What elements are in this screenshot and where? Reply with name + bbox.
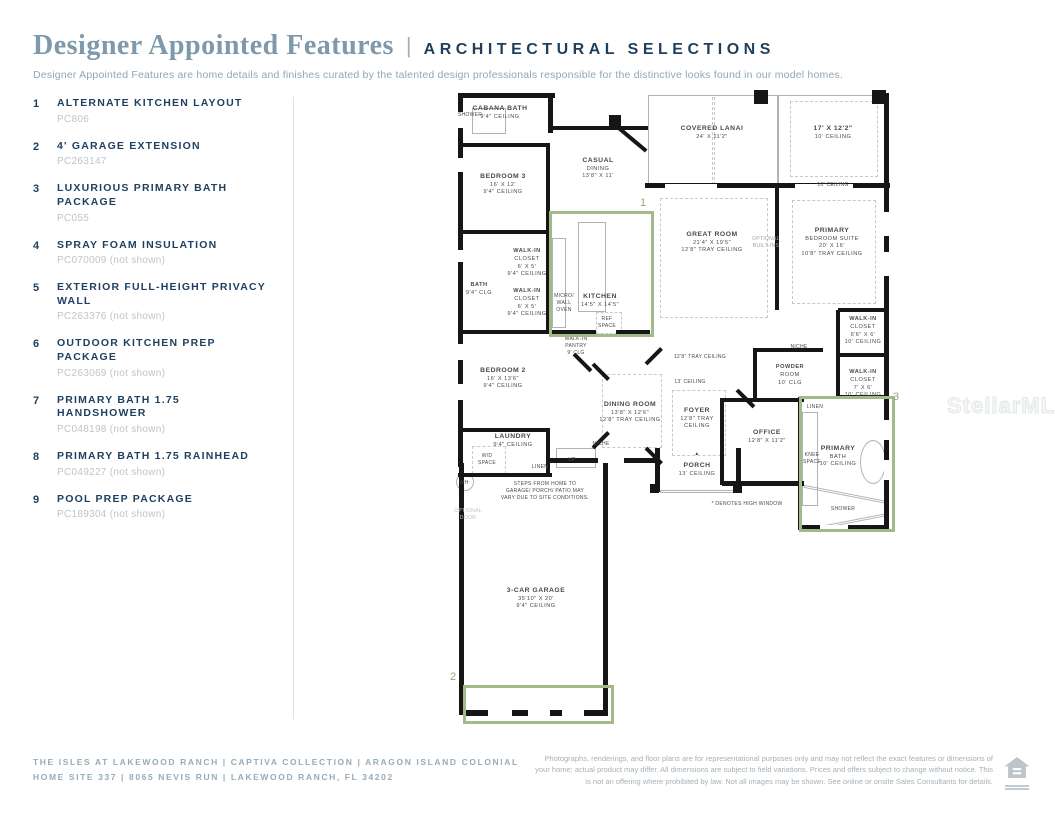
feature-title: PRIMARY BATH 1.75 HANDSHOWER	[57, 394, 271, 421]
wall	[553, 126, 648, 130]
ceiling-dashed-outline	[660, 198, 768, 318]
footer-disclaimer: Photographs, renderings, and floor plans…	[535, 753, 993, 787]
room-label: WALK-INCLOSET6'6" X 6'10' CEILING	[845, 316, 882, 347]
feature-item: 5EXTERIOR FULL-HEIGHT PRIVACY WALLPC2633…	[33, 281, 285, 322]
wall	[838, 308, 886, 312]
feature-code: PC049227 (not shown)	[57, 467, 271, 478]
title-divider: |	[406, 33, 412, 59]
subtitle: Designer Appointed Features are home det…	[33, 69, 843, 81]
feature-highlight-number: 3	[893, 391, 899, 403]
feature-item: 9POOL PREP PACKAGEPC189304 (not shown)	[33, 493, 285, 521]
room-label: GREAT ROOM21'4" X 19'5"12'8" TRAY CEILIN…	[681, 230, 742, 255]
feature-title: SPRAY FOAM INSULATION	[57, 239, 271, 253]
window-opening	[458, 384, 463, 400]
room-label: ▲	[694, 451, 699, 458]
feature-item: 8PRIMARY BATH 1.75 RAINHEADPC049227 (not…	[33, 450, 285, 478]
room-label: PORCH13' CEILING	[679, 461, 716, 478]
wall-diagonal	[645, 347, 663, 365]
room-label: WH	[460, 480, 469, 487]
feature-highlight-box	[799, 396, 895, 532]
pillar	[609, 115, 621, 127]
feature-number: 4	[33, 239, 48, 267]
room-label: OPTIONALBUILT-INS	[752, 236, 780, 250]
wall	[720, 400, 724, 485]
feature-item: 3LUXURIOUS PRIMARY BATH PACKAGEPC055	[33, 182, 285, 223]
feature-code: PC070009 (not shown)	[57, 255, 271, 266]
room-label: COVERED LANAI24' X 11'2"	[681, 124, 744, 141]
feature-code: PC263147	[57, 156, 271, 167]
footer-line1: THE ISLES AT LAKEWOOD RANCH | CAPTIVA CO…	[33, 755, 519, 770]
feature-highlight-box	[549, 211, 654, 337]
wall	[753, 348, 823, 352]
room-label: STEPS FROM HOME TOGARAGE/ PORCH/ PATIO M…	[501, 481, 589, 502]
watermark: StellarMLS	[947, 393, 1055, 419]
room-label: CASUALDINING13'8" X 11'	[582, 156, 614, 181]
window-opening	[884, 252, 889, 276]
room-label: * DENOTES HIGH WINDOW	[711, 501, 782, 508]
feature-item: 24' GARAGE EXTENSIONPC263147	[33, 140, 285, 168]
footer-address: THE ISLES AT LAKEWOOD RANCH | CAPTIVA CO…	[33, 755, 519, 785]
window-opening	[458, 250, 463, 262]
wall	[458, 93, 555, 98]
feature-number: 2	[33, 140, 48, 168]
fixture-outline	[660, 490, 738, 493]
room-label: DINING ROOM13'8" X 12'6"12'8" TRAY CEILI…	[599, 400, 660, 425]
wall	[458, 143, 550, 147]
room-label: 17' X 12'2"10' CEILING	[813, 124, 852, 141]
wall	[458, 93, 463, 467]
pillar	[754, 90, 768, 104]
wall	[603, 460, 608, 715]
room-label: FOYER12'8" TRAYCEILING	[680, 406, 713, 431]
feature-highlight-number: 1	[640, 197, 646, 209]
room-label: LAUNDRY9'4" CEILING	[493, 432, 532, 449]
title-serif: Designer Appointed Features	[33, 30, 394, 62]
feature-highlight-number: 2	[450, 671, 456, 683]
feature-code: PC055	[57, 213, 271, 224]
feature-highlight-box	[463, 685, 614, 724]
feature-number: 5	[33, 281, 48, 322]
title-caps: ARCHITECTURAL SELECTIONS	[424, 41, 775, 59]
header: Designer Appointed Features | ARCHITECTU…	[33, 30, 843, 81]
room-label: OPTIONALDOOR	[454, 508, 482, 522]
feature-title: LUXURIOUS PRIMARY BATH PACKAGE	[57, 182, 271, 209]
pillar	[650, 484, 659, 493]
room-label: WALK-INPANTRY9' CLG	[565, 336, 588, 357]
window-opening	[458, 344, 463, 360]
wall	[458, 473, 552, 477]
window-opening	[884, 212, 889, 236]
feature-item: 4SPRAY FOAM INSULATIONPC070009 (not show…	[33, 239, 285, 267]
room-label: 3-CAR GARAGE35'10" X 20'9'4" CEILING	[507, 586, 566, 611]
room-label: LINEN	[532, 464, 548, 471]
room-label: UP	[568, 457, 576, 464]
feature-title: 4' GARAGE EXTENSION	[57, 140, 271, 154]
room-label: NICHE	[790, 344, 807, 351]
room-label: W/DSPACE	[478, 453, 496, 467]
feature-number: 9	[33, 493, 48, 521]
feature-title: OUTDOOR KITCHEN PREP PACKAGE	[57, 337, 271, 364]
pillar	[872, 90, 886, 104]
room-label: BEDROOM 316' X 12'9'4" CEILING	[480, 172, 526, 197]
wall	[458, 330, 554, 334]
room-label: WALK-INCLOSET6' X 5'9'4" CEILING	[507, 248, 546, 279]
room-label: POWDERROOM10' CLG	[776, 364, 804, 387]
feature-number: 1	[33, 97, 48, 125]
equal-housing-logo-icon	[1002, 757, 1032, 791]
feature-title: EXTERIOR FULL-HEIGHT PRIVACY WALL	[57, 281, 271, 308]
feature-code: PC806	[57, 114, 271, 125]
room-label: NICHE	[592, 441, 609, 448]
eho-caption	[1002, 785, 1032, 790]
wall-diagonal	[592, 363, 610, 381]
window-opening	[458, 158, 463, 172]
feature-number: 3	[33, 182, 48, 223]
feature-number: 7	[33, 394, 48, 435]
room-label: 12'8" TRAY CEILING	[674, 354, 726, 361]
feature-code: PC048198 (not shown)	[57, 424, 271, 435]
wall	[458, 230, 550, 234]
feature-code: PC263069 (not shown)	[57, 368, 271, 379]
room-label: BEDROOM 216' X 13'6"9'4" CEILING	[480, 366, 526, 391]
feature-code: PC189304 (not shown)	[57, 509, 271, 520]
feature-item: 1ALTERNATE KITCHEN LAYOUTPC806	[33, 97, 285, 125]
window-opening	[598, 458, 624, 463]
page: Designer Appointed Features | ARCHITECTU…	[0, 0, 1055, 815]
wall	[884, 93, 889, 188]
room-label: SHOWER	[458, 112, 482, 119]
room-label: 10' CEILING	[817, 182, 848, 189]
footer-line2: HOME SITE 337 | 8065 NEVIS RUN | LAKEWOO…	[33, 770, 519, 785]
room-label: BATH9'4" CLG	[466, 282, 492, 298]
page-title: Designer Appointed Features | ARCHITECTU…	[33, 30, 843, 62]
feature-number: 6	[33, 337, 48, 378]
feature-code: PC263376 (not shown)	[57, 311, 271, 322]
pillar	[733, 484, 742, 493]
feature-item: 7PRIMARY BATH 1.75 HANDSHOWERPC048198 (n…	[33, 394, 285, 435]
room-label: 13' CEILING	[674, 379, 705, 386]
room-label: OFFICE12'8" X 11'2"	[748, 428, 786, 445]
room-label: PRIMARYBEDROOM SUITE20' X 16'10'8" TRAY …	[801, 226, 862, 259]
feature-title: POOL PREP PACKAGE	[57, 493, 271, 507]
window-opening	[665, 184, 717, 189]
wall	[720, 398, 804, 402]
vertical-divider	[293, 97, 294, 719]
room-label: WALK-INCLOSET6' X 5'9'4" CEILING	[507, 288, 546, 319]
feature-list: 1ALTERNATE KITCHEN LAYOUTPC80624' GARAGE…	[33, 97, 285, 535]
wall	[459, 463, 464, 715]
wall	[753, 350, 757, 400]
feature-number: 8	[33, 450, 48, 478]
feature-title: ALTERNATE KITCHEN LAYOUT	[57, 97, 271, 111]
wall	[838, 353, 886, 357]
feature-title: PRIMARY BATH 1.75 RAINHEAD	[57, 450, 271, 464]
feature-item: 6OUTDOOR KITCHEN PREP PACKAGEPC263069 (n…	[33, 337, 285, 378]
